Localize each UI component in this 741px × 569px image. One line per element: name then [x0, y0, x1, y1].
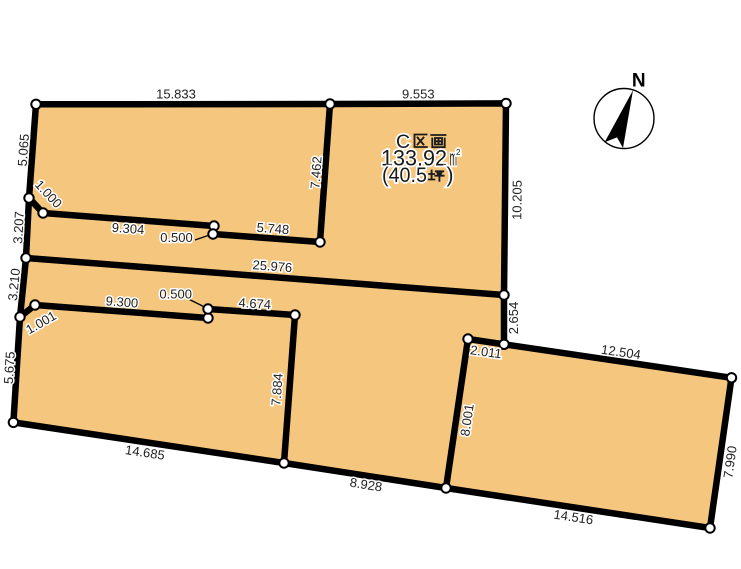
svg-text:(40.5: (40.5: [382, 164, 427, 187]
svg-text:5.748: 5.748: [256, 220, 290, 237]
svg-text:): ): [447, 164, 454, 187]
svg-text:5.675: 5.675: [1, 351, 18, 384]
svg-text:9.553: 9.553: [402, 87, 435, 102]
svg-text:7.462: 7.462: [307, 156, 324, 190]
svg-text:10.205: 10.205: [509, 180, 524, 220]
svg-text:0.500: 0.500: [160, 230, 193, 245]
svg-text:9.304: 9.304: [111, 220, 145, 237]
svg-text:7.884: 7.884: [268, 373, 285, 407]
svg-text:4.674: 4.674: [238, 295, 271, 312]
svg-text:9.300: 9.300: [105, 293, 139, 310]
svg-text:2.654: 2.654: [506, 302, 521, 335]
svg-text:0.500: 0.500: [159, 287, 192, 302]
svg-text:2: 2: [456, 148, 461, 157]
svg-text:15.833: 15.833: [156, 87, 196, 102]
svg-text:25.976: 25.976: [252, 257, 293, 275]
svg-text:3.207: 3.207: [10, 211, 27, 244]
svg-text:N: N: [632, 71, 646, 92]
svg-text:5.065: 5.065: [15, 133, 32, 167]
